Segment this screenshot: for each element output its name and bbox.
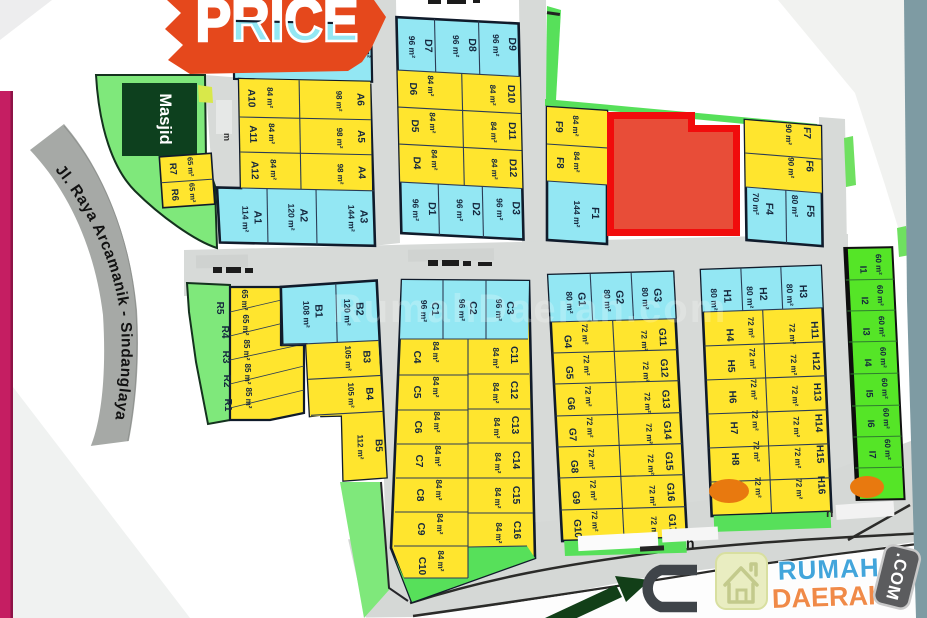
svg-text:R2: R2 [221,375,232,388]
svg-text:72 m²: 72 m² [641,361,651,382]
svg-text:A3: A3 [357,210,369,224]
svg-text:G4: G4 [561,335,573,349]
svg-text:105 m²: 105 m² [343,345,353,371]
svg-text:A5: A5 [355,130,366,143]
svg-text:72 m²: 72 m² [749,379,759,401]
svg-text:72 m²: 72 m² [586,449,596,470]
svg-text:84 m²: 84 m² [429,149,438,171]
svg-text:60 m²: 60 m² [874,254,884,275]
svg-text:80 m²: 80 m² [745,286,756,309]
svg-text:R5: R5 [214,302,225,315]
svg-text:C9: C9 [415,523,426,536]
svg-text:84 m²: 84 m² [494,523,503,544]
svg-text:65 m²: 65 m² [240,290,249,311]
svg-text:C15: C15 [510,486,521,505]
svg-text:72 m²: 72 m² [793,447,803,469]
svg-text:C14: C14 [510,451,521,470]
svg-text:D7: D7 [422,39,434,53]
svg-text:I5: I5 [863,390,874,399]
svg-text:84 m²: 84 m² [492,418,501,439]
svg-text:144 m²: 144 m² [346,205,356,232]
svg-text:84 m²: 84 m² [489,121,498,143]
svg-text:84 m²: 84 m² [426,75,435,97]
svg-text:R7: R7 [167,163,179,176]
svg-text:65 m²: 65 m² [187,183,197,204]
svg-text:72 m²: 72 m² [642,392,652,413]
svg-text:H8: H8 [729,453,741,467]
svg-text:98 m²: 98 m² [336,164,345,185]
svg-text:H16: H16 [815,476,827,495]
svg-text:H5: H5 [725,360,737,374]
svg-text:C7: C7 [413,455,424,468]
svg-text:72 m²: 72 m² [791,416,801,438]
svg-text:A6: A6 [354,93,365,106]
svg-text:72 m²: 72 m² [790,385,800,407]
svg-text:C10: C10 [416,557,427,576]
svg-text:85 m²: 85 m² [244,388,253,409]
svg-text:72 m²: 72 m² [789,354,799,376]
svg-text:120 m²: 120 m² [286,203,296,230]
svg-text:85 m²: 85 m² [243,364,252,385]
svg-text:H15: H15 [814,445,826,464]
svg-text:144 m²: 144 m² [572,200,582,228]
svg-text:112 m²: 112 m² [355,434,365,459]
svg-text:72 m²: 72 m² [753,477,763,499]
svg-text:70 m²: 70 m² [751,192,761,215]
svg-text:Masjid: Masjid [156,93,174,144]
svg-text:84 m²: 84 m² [571,115,580,137]
svg-text:B4: B4 [363,387,374,401]
svg-text:A2: A2 [297,208,309,222]
svg-text:RumahDaerah.com: RumahDaerah.com [333,287,728,331]
svg-text:H13: H13 [811,383,823,402]
svg-text:90 m²: 90 m² [784,124,793,146]
svg-text:84 m²: 84 m² [435,514,444,535]
svg-text:72 m²: 72 m² [581,355,591,376]
svg-text:C12: C12 [508,381,519,400]
svg-text:84 m²: 84 m² [265,87,274,108]
svg-text:80 m²: 80 m² [785,284,796,307]
svg-text:D6: D6 [407,82,418,96]
svg-text:G9: G9 [570,491,582,505]
svg-text:84 m²: 84 m² [436,551,445,572]
svg-text:G14: G14 [661,421,673,441]
svg-text:D12: D12 [507,159,518,178]
svg-text:D3: D3 [510,201,522,215]
svg-text:F9: F9 [553,121,564,134]
svg-text:98 m²: 98 m² [334,91,343,112]
svg-text:84 m²: 84 m² [267,123,276,144]
svg-text:C11: C11 [508,346,519,364]
svg-text:I2: I2 [859,297,870,305]
svg-text:D11: D11 [506,122,517,141]
svg-text:72 m²: 72 m² [787,323,797,345]
svg-text:G12: G12 [658,359,670,379]
svg-text:84 m²: 84 m² [434,480,443,501]
svg-text:96 m²: 96 m² [451,35,462,58]
svg-text:R4: R4 [219,326,230,339]
svg-text:D5: D5 [409,119,420,133]
svg-text:72 m²: 72 m² [639,330,649,351]
svg-text:60 m²: 60 m² [883,439,893,460]
svg-text:G6: G6 [565,397,577,411]
svg-text:F6: F6 [803,160,814,173]
svg-text:F5: F5 [804,205,816,218]
svg-text:C4: C4 [411,351,422,364]
svg-text:D8: D8 [466,38,478,52]
svg-text:A10: A10 [245,89,256,108]
svg-text:I6: I6 [865,420,876,428]
svg-text:84 m²: 84 m² [433,446,442,467]
svg-text:G13: G13 [659,390,671,410]
svg-text:72 m²: 72 m² [750,410,760,432]
svg-text:60 m²: 60 m² [880,378,890,399]
svg-text:84 m²: 84 m² [572,151,581,173]
svg-text:84 m²: 84 m² [491,348,500,369]
svg-text:C13: C13 [509,416,520,435]
svg-text:C8: C8 [414,489,425,502]
svg-text:D2: D2 [470,202,482,216]
svg-text:F8: F8 [554,157,565,170]
svg-text:G10: G10 [571,519,583,539]
svg-text:F4: F4 [763,202,775,215]
svg-text:I3: I3 [860,328,871,336]
svg-text:H2: H2 [757,287,770,301]
svg-text:H11: H11 [808,321,820,340]
svg-text:A12: A12 [249,161,260,180]
svg-text:72 m²: 72 m² [644,423,654,444]
svg-text:96 m²: 96 m² [455,199,466,222]
svg-text:60 m²: 60 m² [877,316,887,337]
svg-text:F7: F7 [801,127,812,140]
svg-text:114 m²: 114 m² [240,206,250,233]
svg-text:84 m²: 84 m² [431,342,440,363]
svg-text:DAERAH: DAERAH [771,580,887,614]
svg-text:D9: D9 [506,37,518,51]
svg-text:72 m²: 72 m² [646,454,656,475]
svg-text:G5: G5 [563,366,575,380]
svg-text:108 m²: 108 m² [301,301,312,328]
svg-text:C16: C16 [511,521,522,540]
svg-text:PRICE: PRICE [196,0,359,54]
svg-text:72 m²: 72 m² [588,480,598,501]
svg-text:96 m²: 96 m² [407,36,418,59]
svg-text:H14: H14 [812,414,824,433]
svg-text:A1: A1 [251,210,263,224]
svg-text:B5: B5 [373,439,384,453]
svg-text:72 m²: 72 m² [746,317,756,339]
svg-text:60 m²: 60 m² [881,408,891,429]
svg-text:72 m²: 72 m² [647,485,657,506]
svg-text:72 m²: 72 m² [590,511,600,532]
svg-text:84 m²: 84 m² [493,488,502,509]
svg-text:B1: B1 [312,304,324,318]
svg-text:60 m²: 60 m² [878,347,888,368]
svg-text:A11: A11 [247,125,258,143]
svg-text:84 m²: 84 m² [491,383,500,404]
svg-text:H12: H12 [810,352,822,371]
svg-text:G15: G15 [663,452,675,472]
svg-text:n: n [686,535,695,551]
svg-text:H3: H3 [797,285,810,299]
svg-text:D1: D1 [426,202,438,216]
svg-text:96 m²: 96 m² [411,199,422,222]
svg-text:90 m²: 90 m² [786,157,795,179]
svg-text:R6: R6 [169,188,181,201]
svg-text:A4: A4 [356,166,367,179]
svg-text:m: m [222,133,232,141]
svg-text:80 m²: 80 m² [790,194,800,217]
svg-text:98 m²: 98 m² [335,128,344,149]
svg-text:105 m²: 105 m² [346,382,356,408]
svg-text:84 m²: 84 m² [493,453,502,474]
svg-text:C6: C6 [412,421,423,434]
svg-text:G7: G7 [566,428,578,442]
svg-text:D10: D10 [505,85,516,104]
svg-text:96 m²: 96 m² [491,34,502,57]
svg-text:I7: I7 [866,451,877,459]
svg-text:H7: H7 [728,422,740,436]
svg-text:84 m²: 84 m² [428,112,437,134]
svg-text:84 m²: 84 m² [432,412,441,433]
svg-text:R3: R3 [220,351,231,364]
svg-text:72 m²: 72 m² [583,386,593,407]
svg-text:72 m²: 72 m² [747,348,757,370]
svg-text:96 m²: 96 m² [495,198,506,221]
svg-text:R1: R1 [222,399,233,412]
svg-text:G8: G8 [568,460,580,474]
svg-text:84 m²: 84 m² [490,158,499,180]
svg-text:I1: I1 [857,266,868,275]
svg-text:84 m²: 84 m² [268,159,277,180]
svg-text:72 m²: 72 m² [585,417,595,438]
svg-text:60 m²: 60 m² [875,285,885,306]
svg-text:F1: F1 [589,207,601,220]
svg-text:H6: H6 [726,391,738,405]
svg-text:B3: B3 [360,350,371,364]
svg-text:I4: I4 [862,359,873,368]
svg-text:G16: G16 [664,483,676,503]
svg-text:85 m²: 85 m² [242,340,251,361]
svg-text:72 m²: 72 m² [794,478,804,500]
svg-text:C5: C5 [411,386,422,399]
svg-text:D4: D4 [411,156,422,170]
svg-text:65 m²: 65 m² [241,315,250,336]
svg-text:84 m²: 84 m² [431,377,440,398]
svg-text:72 m²: 72 m² [751,441,761,463]
svg-text:65 m²: 65 m² [185,157,195,178]
svg-text:n: n [826,506,833,520]
svg-text:84 m²: 84 m² [488,84,497,106]
